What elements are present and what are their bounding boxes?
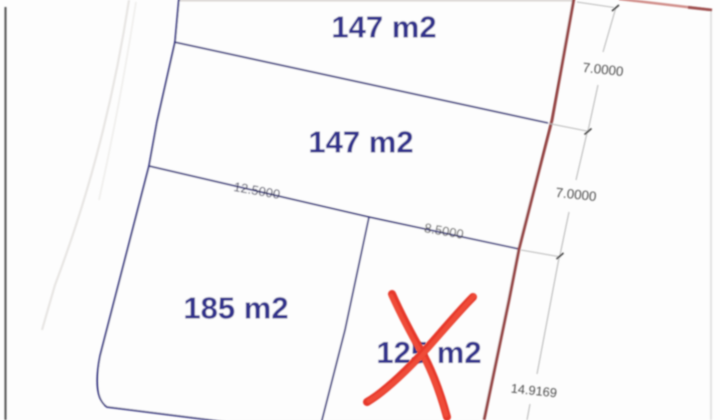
svg-text:147 m2: 147 m2: [308, 125, 413, 160]
svg-text:147 m2: 147 m2: [331, 10, 436, 45]
svg-text:185 m2: 185 m2: [183, 291, 288, 326]
